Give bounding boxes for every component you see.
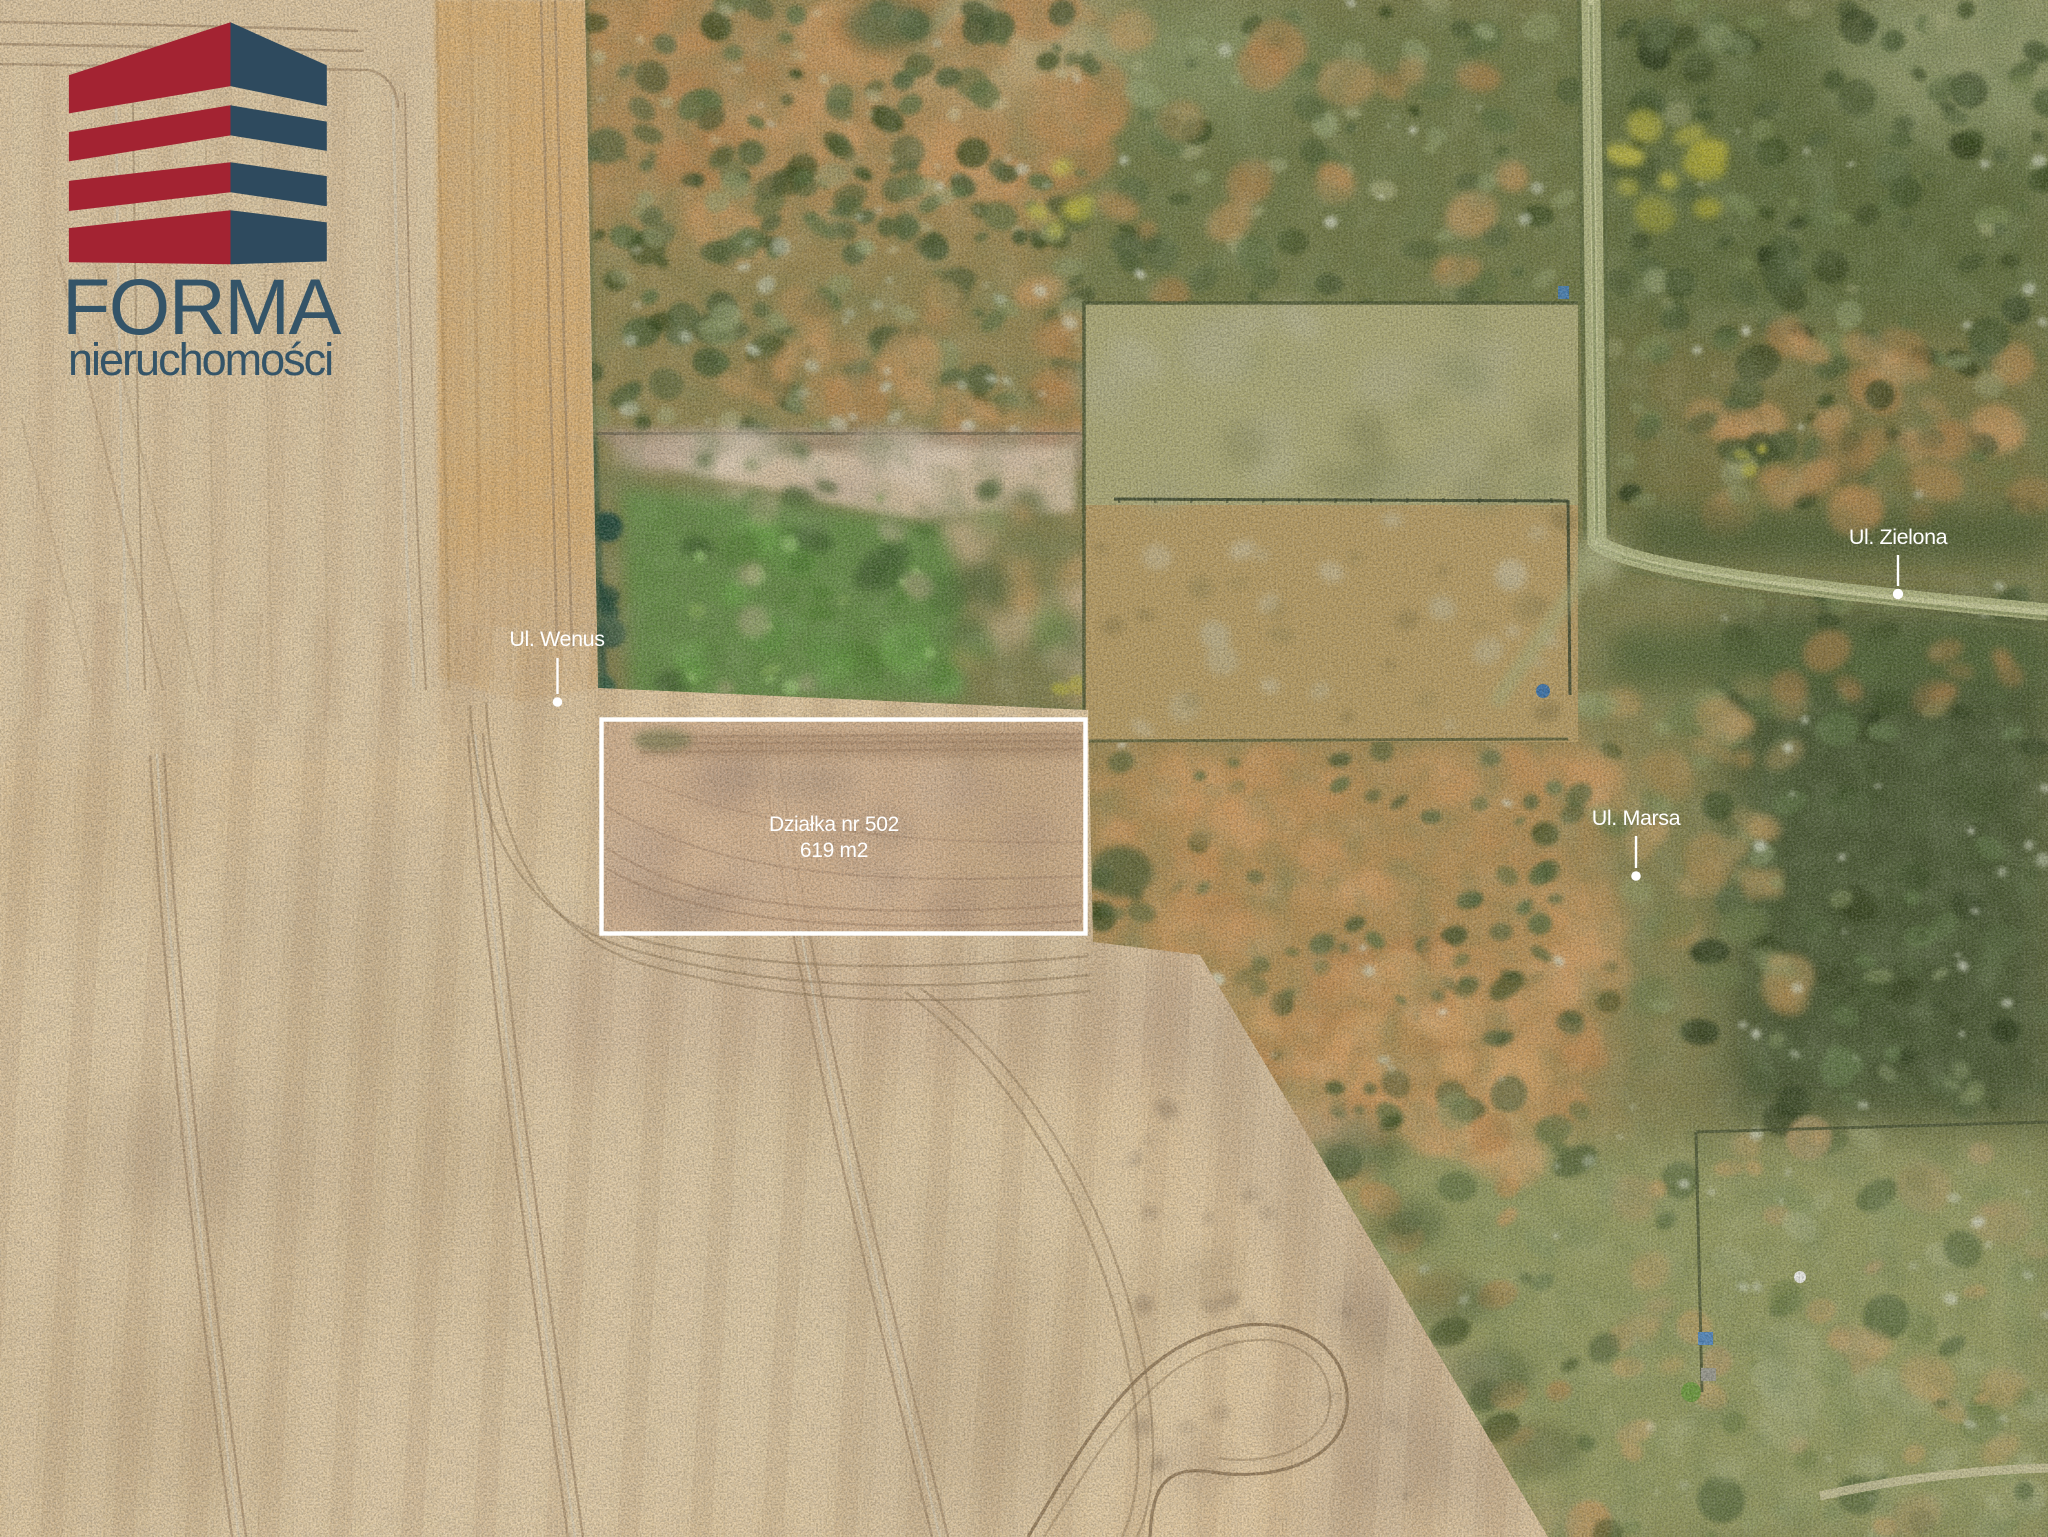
svg-text:Działka nr 502: Działka nr 502 — [769, 813, 899, 836]
svg-text:619 m2: 619 m2 — [800, 839, 868, 862]
svg-text:Ul. Wenus: Ul. Wenus — [509, 627, 604, 651]
svg-text:Ul. Marsa: Ul. Marsa — [1592, 806, 1681, 830]
svg-text:Ul. Zielona: Ul. Zielona — [1849, 525, 1948, 549]
svg-text:nieruchomości: nieruchomości — [68, 334, 332, 385]
